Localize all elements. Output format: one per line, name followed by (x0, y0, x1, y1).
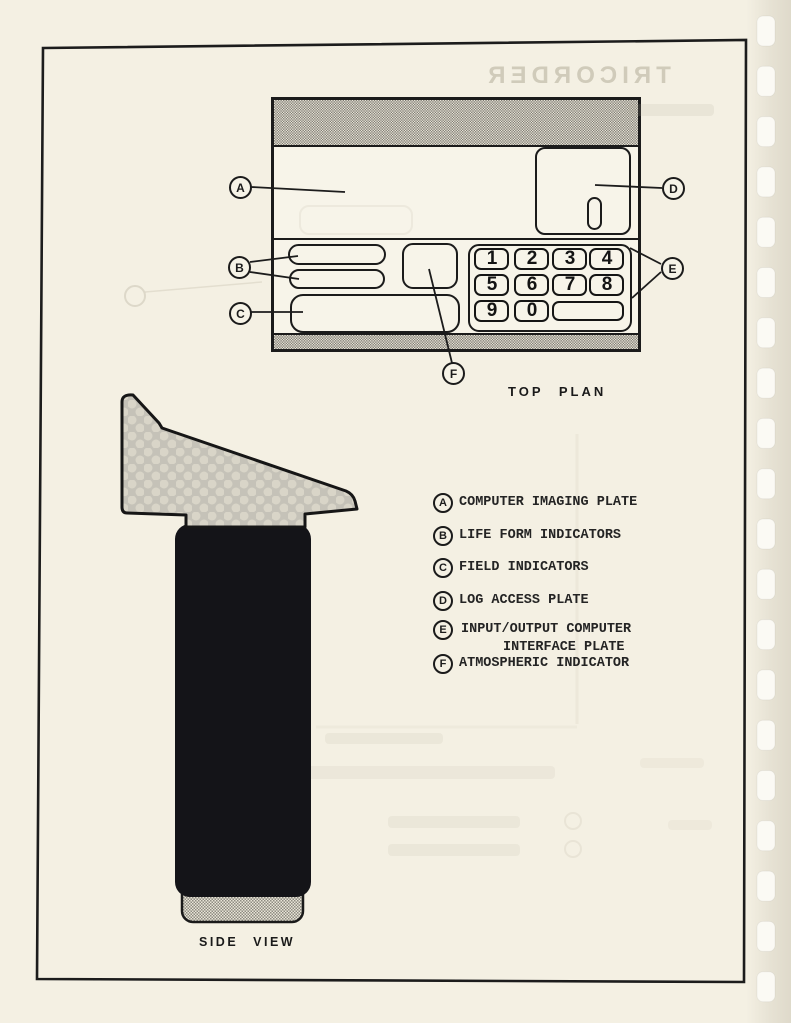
callout-circle-a: A (229, 176, 252, 199)
keypad-key-7: 7 (552, 274, 587, 296)
keypad-key-3: 3 (552, 248, 587, 270)
legend-label-b: LIFE FORM INDICATORS (459, 527, 621, 545)
legend-label-f: ATMOSPHERIC INDICATOR (459, 655, 629, 673)
legend-label-e: INPUT/OUTPUT COMPUTER (461, 621, 631, 639)
top-plan-label: TOP PLAN (508, 384, 606, 399)
keypad-key-5: 5 (474, 274, 509, 296)
keypad-key-6: 6 (514, 274, 549, 296)
keypad-key-8: 8 (589, 274, 624, 296)
legend-label-a: COMPUTER IMAGING PLATE (459, 494, 637, 512)
atmospheric-indicator-key (402, 243, 458, 289)
keypad-key-4: 4 (589, 248, 624, 270)
side-view-handle-body (175, 524, 311, 897)
keypad-key-2: 2 (514, 248, 549, 270)
field-indicator-panel (290, 294, 460, 333)
keypad-key-9: 9 (474, 300, 509, 322)
keypad-panel: 1 2 3 4 5 6 7 8 9 0 (468, 244, 632, 332)
device-bottom-hatch-band (274, 333, 638, 349)
keypad-key-0: 0 (514, 300, 549, 322)
life-form-indicator-2 (289, 269, 385, 289)
legend-circle-d: D (433, 591, 453, 611)
log-access-latch (587, 197, 602, 230)
side-view-label: SIDE VIEW (199, 935, 295, 949)
legend-circle-b: B (433, 526, 453, 546)
legend-label-c: FIELD INDICATORS (459, 559, 589, 577)
life-form-indicator-1 (288, 244, 386, 265)
callout-circle-d: D (662, 177, 685, 200)
tricorder-side-view-drawing (122, 395, 357, 922)
legend-circle-a: A (433, 493, 453, 513)
callout-circle-e: E (661, 257, 684, 280)
callout-circle-f: F (442, 362, 465, 385)
tricorder-top-plan-device: 1 2 3 4 5 6 7 8 9 0 (271, 97, 641, 352)
legend-circle-c: C (433, 558, 453, 578)
keypad-key-blank (552, 301, 624, 321)
ghost-title-bleedthrough: TRICORDER (462, 62, 692, 90)
side-view-scanner-head (122, 395, 357, 527)
side-view-base-foot (182, 874, 303, 922)
callout-circle-c: C (229, 302, 252, 325)
binding-edge-shade (746, 0, 791, 1023)
legend-circle-e: E (433, 620, 453, 640)
keypad-key-1: 1 (474, 248, 509, 270)
device-section-divider (274, 238, 638, 240)
device-top-hatch-band (274, 100, 638, 147)
callout-circle-b: B (228, 256, 251, 279)
legend-label-e-line2: INTERFACE PLATE (503, 639, 625, 657)
legend-circle-f: F (433, 654, 453, 674)
legend-label-d: LOG ACCESS PLATE (459, 592, 589, 610)
log-access-plate (535, 147, 631, 235)
